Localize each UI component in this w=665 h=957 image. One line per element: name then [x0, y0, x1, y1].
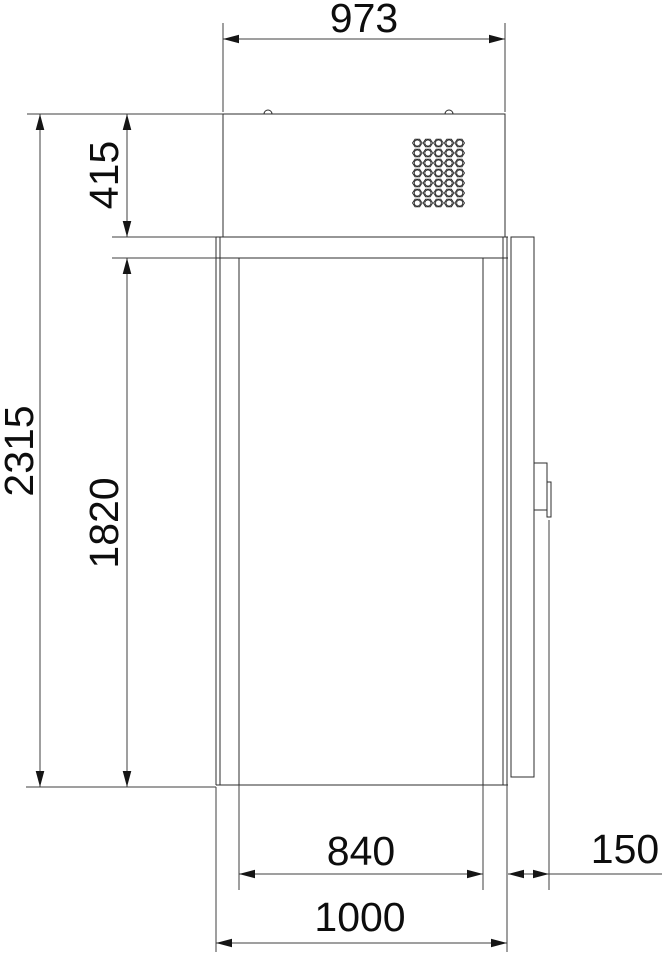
- cabinet-body-outline: [216, 237, 508, 785]
- dim-label-top-width: 973: [284, 0, 444, 38]
- door-panel: [511, 237, 534, 777]
- dim-label-overall-height: 2315: [0, 371, 41, 531]
- dim-label-overall-width: 1000: [260, 897, 460, 937]
- vent-grille: [412, 138, 465, 208]
- dimension-drawing-canvas: 973 2315 415 1820 840 150 1000: [0, 0, 665, 957]
- dimension-1820-lines: [112, 258, 216, 787]
- dim-label-condensing-unit-height: 415: [82, 115, 126, 235]
- door-handle: [534, 463, 551, 517]
- dim-label-inner-width: 840: [281, 831, 441, 871]
- dimension-415-lines: [112, 114, 216, 237]
- dim-label-body-height: 1820: [82, 443, 126, 603]
- dim-label-door-depth: 150: [565, 829, 665, 869]
- condensing-unit-top-bumps: [264, 110, 453, 114]
